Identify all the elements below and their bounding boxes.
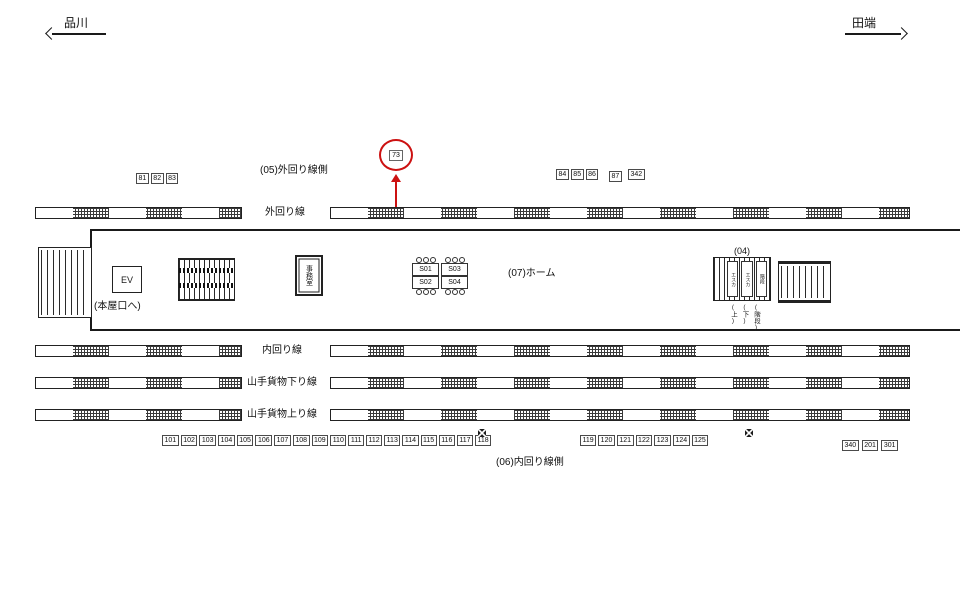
ad-box: 117 <box>457 435 473 446</box>
ad-row-119-125: 119120121122123124125 <box>580 435 708 446</box>
ad-box: 201 <box>862 440 879 451</box>
highlight-arrow-shaft <box>395 182 397 207</box>
ad-box: 86 <box>586 169 599 180</box>
ad-box: 115 <box>421 435 437 446</box>
highlight-number: 73 <box>389 150 403 161</box>
station-diagram: 品川 田端 (05)外回り線側 73 818283 848586 87 342 … <box>0 0 960 605</box>
ad-box: 105 <box>237 435 254 446</box>
ad-row-101-118: 1011021031041051061071081091101111121131… <box>162 435 491 446</box>
ad-box: 106 <box>255 435 272 446</box>
ad-box: (下) <box>741 304 748 331</box>
label-04: (04) <box>734 246 750 256</box>
ad-box: 83 <box>166 173 179 184</box>
platform-top-edge <box>90 229 960 231</box>
escalator-stripe <box>179 268 234 273</box>
left-stairs <box>38 247 92 318</box>
stairs-04-sub-labels: (上)(下)(階段) <box>729 304 759 331</box>
label-freight-up: 山手貨物上り線 <box>247 405 317 420</box>
ad-box: 301 <box>881 440 898 451</box>
pillar-s01-s02: S01S02 <box>412 257 439 295</box>
ad-box: 340 <box>842 440 859 451</box>
pillar-s03-s04: S03S04 <box>441 257 468 295</box>
label-inner-line: 内回り線 <box>262 341 302 356</box>
ad-box: 103 <box>199 435 216 446</box>
ad-box: 113 <box>384 435 400 446</box>
label-outer-line-side: (05)外回り線側 <box>260 161 328 176</box>
arrow-left-icon <box>45 27 58 40</box>
ad-box: エスカ <box>741 261 752 297</box>
ad-box: 87 <box>609 171 622 182</box>
stairs-plain <box>778 261 831 303</box>
arrow-right-icon <box>895 27 908 40</box>
track-band-inner-left <box>35 345 242 357</box>
highlight-arrow-icon <box>391 174 401 182</box>
ad-box: S03 <box>441 263 468 276</box>
ad-box: 120 <box>598 435 615 446</box>
ad-box: 122 <box>636 435 653 446</box>
ad-box: 階段 <box>756 261 767 297</box>
x-marker-icon <box>478 429 486 437</box>
ad-box: 110 <box>330 435 346 446</box>
label-freight-down: 山手貨物下り線 <box>247 373 317 388</box>
pillar-dots <box>445 289 465 295</box>
nav-left-underline <box>52 33 106 35</box>
track-band-inner-right <box>330 345 910 357</box>
escalator-stripe <box>179 283 234 288</box>
ad-box: 114 <box>402 435 418 446</box>
nav-station-shinagawa: 品川 <box>64 14 88 31</box>
ad-box: 82 <box>151 173 164 184</box>
ad-box: S02 <box>412 276 439 289</box>
ad-box: 119 <box>580 435 596 446</box>
ad-box: 84 <box>556 169 569 180</box>
ad-box: 104 <box>218 435 235 446</box>
ad-box: エスカ <box>727 261 738 297</box>
ad-box: S01 <box>412 263 439 276</box>
ad-box: 111 <box>348 435 364 446</box>
track-band-freight-up-left <box>35 409 242 421</box>
ad-box: S04 <box>441 276 468 289</box>
pillar-boxes: S03S04 <box>441 263 468 289</box>
stairs-04: エスカエスカ階段 <box>713 257 771 301</box>
office-box: 事務室 <box>295 255 323 296</box>
label-platform: (07)ホーム <box>508 264 555 279</box>
ad-row-340-201-301: 340201301 <box>842 440 898 451</box>
track-band-outer-right <box>330 207 910 219</box>
ad-box: 102 <box>181 435 198 446</box>
ad-box: 101 <box>162 435 179 446</box>
elevator-box: EV <box>112 266 142 293</box>
ad-box: 121 <box>617 435 634 446</box>
office-label: 事務室 <box>306 265 313 286</box>
ad-box: 85 <box>571 169 584 180</box>
ad-box: 125 <box>692 435 709 446</box>
ad-box: 107 <box>274 435 291 446</box>
platform-left-edge-bottom <box>90 317 92 330</box>
label-outer-line: 外回り線 <box>265 203 305 218</box>
elevator-label: EV <box>121 275 133 285</box>
x-marker-icon <box>745 429 753 437</box>
nav-right-underline <box>845 33 901 35</box>
ad-row-342: 342 <box>628 169 645 180</box>
track-band-outer-left <box>35 207 242 219</box>
pillar-dots <box>416 289 436 295</box>
ad-box: 124 <box>673 435 690 446</box>
track-band-freight-down-right <box>330 377 910 389</box>
ad-box: 112 <box>366 435 382 446</box>
ad-box: 116 <box>439 435 455 446</box>
ad-box: 81 <box>136 173 149 184</box>
ad-box: (階段) <box>752 304 759 331</box>
highlight-circle: 73 <box>379 139 413 171</box>
track-band-freight-up-right <box>330 409 910 421</box>
escalator <box>178 258 235 301</box>
ad-box: 342 <box>628 169 645 180</box>
pillar-boxes: S01S02 <box>412 263 439 289</box>
platform-left-edge-top <box>90 229 92 248</box>
ad-box: 123 <box>654 435 671 446</box>
ad-box: (上) <box>729 304 736 331</box>
ad-row-84-86: 848586 <box>556 169 598 180</box>
label-main-exit: (本屋口へ) <box>94 297 141 312</box>
ad-row-87: 87 <box>609 171 622 182</box>
track-band-freight-down-left <box>35 377 242 389</box>
platform-bottom-edge <box>90 329 960 331</box>
label-inner-line-side: (06)内回り線側 <box>496 453 564 468</box>
ad-box: 108 <box>293 435 310 446</box>
stairs-04-strips: エスカエスカ階段 <box>727 261 767 297</box>
ad-row-81-83: 818283 <box>136 173 178 184</box>
nav-station-tabata: 田端 <box>852 14 876 31</box>
ad-box: 109 <box>312 435 329 446</box>
